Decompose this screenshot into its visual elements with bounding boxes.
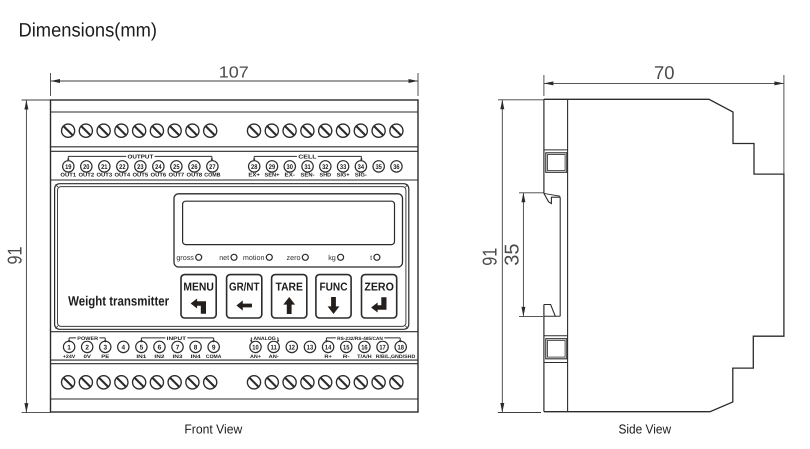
svg-text:Front View: Front View bbox=[184, 422, 242, 437]
svg-text:AN-: AN- bbox=[269, 354, 279, 360]
svg-text:9: 9 bbox=[212, 344, 216, 351]
svg-text:Weight transmitter: Weight transmitter bbox=[68, 294, 170, 309]
svg-text:Dimensions(mm): Dimensions(mm) bbox=[19, 20, 158, 42]
svg-text:31: 31 bbox=[304, 164, 311, 171]
svg-text:SIG+: SIG+ bbox=[337, 173, 350, 179]
svg-text:EX-: EX- bbox=[285, 173, 296, 179]
svg-text:t: t bbox=[370, 253, 372, 262]
svg-text:35: 35 bbox=[375, 164, 382, 171]
svg-text:SEN+: SEN+ bbox=[264, 173, 279, 179]
svg-text:25: 25 bbox=[173, 164, 180, 171]
svg-text:OUTPUT: OUTPUT bbox=[128, 154, 154, 160]
svg-text:POWER: POWER bbox=[77, 336, 98, 342]
svg-text:18: 18 bbox=[398, 344, 405, 351]
svg-text:kg: kg bbox=[328, 253, 336, 262]
svg-text:22: 22 bbox=[119, 164, 126, 171]
svg-text:12: 12 bbox=[289, 344, 296, 351]
svg-text:MENU: MENU bbox=[183, 282, 214, 294]
svg-text:21: 21 bbox=[101, 164, 108, 171]
svg-text:T/A/H: T/A/H bbox=[357, 354, 372, 360]
svg-text:SIG-: SIG- bbox=[355, 173, 367, 179]
svg-text:19: 19 bbox=[65, 164, 72, 171]
svg-text:EX+: EX+ bbox=[248, 173, 260, 179]
svg-text:TARE: TARE bbox=[276, 282, 304, 294]
svg-text:SHD: SHD bbox=[320, 173, 332, 179]
svg-text:17: 17 bbox=[379, 344, 386, 351]
svg-text:36: 36 bbox=[393, 164, 400, 171]
svg-text:91: 91 bbox=[480, 248, 502, 266]
svg-text:Side View: Side View bbox=[618, 422, 671, 437]
svg-text:R-: R- bbox=[343, 354, 350, 360]
svg-text:4: 4 bbox=[122, 344, 126, 351]
svg-text:13: 13 bbox=[307, 344, 314, 351]
svg-text:33: 33 bbox=[340, 164, 347, 171]
svg-text:OUT6: OUT6 bbox=[151, 173, 167, 179]
svg-text:29: 29 bbox=[269, 164, 276, 171]
svg-text:91: 91 bbox=[4, 247, 26, 265]
svg-text:26: 26 bbox=[191, 164, 198, 171]
svg-text:5: 5 bbox=[140, 344, 144, 351]
svg-text:IN2: IN2 bbox=[154, 354, 164, 360]
svg-text:IN4: IN4 bbox=[191, 354, 201, 360]
svg-text:IN3: IN3 bbox=[173, 354, 183, 360]
svg-text:FUNC: FUNC bbox=[320, 282, 348, 294]
svg-text:COMB: COMB bbox=[204, 173, 220, 179]
svg-text:30: 30 bbox=[287, 164, 294, 171]
svg-text:OUT4: OUT4 bbox=[114, 173, 130, 179]
svg-text:R+: R+ bbox=[324, 354, 332, 360]
svg-text:zero: zero bbox=[287, 253, 301, 262]
svg-text:gross: gross bbox=[176, 253, 194, 262]
svg-text:0V: 0V bbox=[83, 354, 91, 360]
svg-text:CELL: CELL bbox=[298, 154, 317, 160]
svg-text:OUT2: OUT2 bbox=[78, 173, 94, 179]
svg-text:16: 16 bbox=[361, 344, 368, 351]
svg-text:107: 107 bbox=[219, 64, 249, 81]
svg-text:35: 35 bbox=[502, 243, 524, 265]
svg-text:10: 10 bbox=[252, 344, 259, 351]
svg-text:RS-232/RS-485/CAN: RS-232/RS-485/CAN bbox=[337, 336, 383, 341]
svg-text:7: 7 bbox=[176, 344, 180, 351]
svg-text:net: net bbox=[219, 253, 229, 262]
svg-text:11: 11 bbox=[270, 344, 277, 351]
svg-text:6: 6 bbox=[158, 344, 162, 351]
svg-text:32: 32 bbox=[322, 164, 329, 171]
svg-text:15: 15 bbox=[343, 344, 350, 351]
svg-text:GR/NT: GR/NT bbox=[229, 282, 260, 294]
svg-text:ZERO: ZERO bbox=[364, 282, 394, 294]
svg-text:COMA: COMA bbox=[206, 354, 222, 360]
svg-text:70: 70 bbox=[654, 62, 675, 83]
svg-text:23: 23 bbox=[137, 164, 144, 171]
svg-text:2: 2 bbox=[85, 344, 89, 351]
svg-text:AN+: AN+ bbox=[250, 354, 261, 360]
svg-text:motion: motion bbox=[243, 253, 265, 262]
svg-text:R/B/L,GND/SHD: R/B/L,GND/SHD bbox=[376, 354, 416, 360]
svg-text:INPUT: INPUT bbox=[167, 336, 186, 342]
svg-text:OUT8: OUT8 bbox=[187, 173, 203, 179]
svg-text:27: 27 bbox=[209, 164, 216, 171]
svg-text:24: 24 bbox=[155, 164, 162, 171]
svg-text:OUT7: OUT7 bbox=[169, 173, 185, 179]
svg-text:14: 14 bbox=[325, 344, 332, 351]
svg-text:ANALOG: ANALOG bbox=[253, 336, 276, 342]
svg-text:IN1: IN1 bbox=[136, 354, 146, 360]
svg-text:SEN-: SEN- bbox=[301, 173, 315, 179]
svg-text:8: 8 bbox=[194, 344, 198, 351]
svg-text:+24V: +24V bbox=[63, 354, 76, 360]
svg-text:PE: PE bbox=[101, 354, 110, 360]
svg-text:OUT3: OUT3 bbox=[96, 173, 112, 179]
svg-text:34: 34 bbox=[358, 164, 365, 171]
svg-text:1: 1 bbox=[67, 344, 71, 351]
svg-text:OUT5: OUT5 bbox=[132, 173, 148, 179]
svg-text:3: 3 bbox=[103, 344, 107, 351]
svg-text:28: 28 bbox=[251, 164, 258, 171]
svg-text:OUT1: OUT1 bbox=[60, 173, 76, 179]
svg-text:20: 20 bbox=[83, 164, 90, 171]
